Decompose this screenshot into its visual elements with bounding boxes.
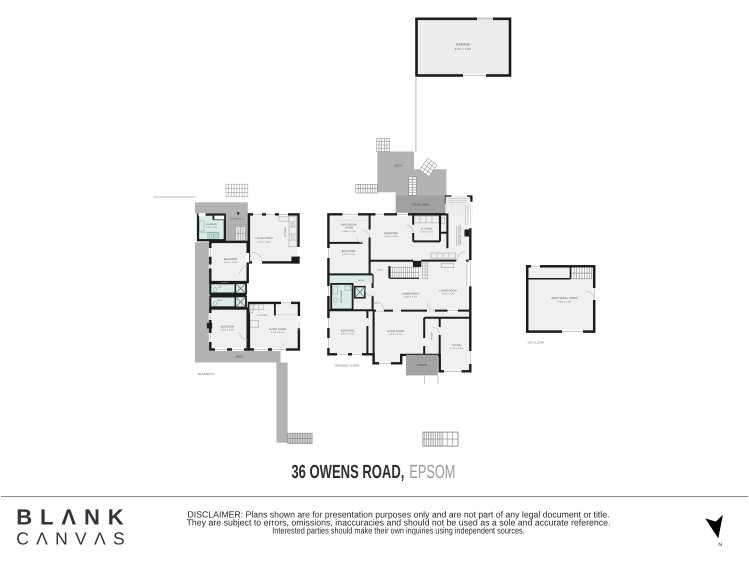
svg-text:BATH: BATH bbox=[217, 299, 223, 302]
svg-text:COVERED DECK: COVERED DECK bbox=[230, 218, 244, 221]
svg-text:FOYER: FOYER bbox=[431, 332, 434, 340]
svg-text:3.4m x 4.6m: 3.4m x 4.6m bbox=[257, 240, 270, 243]
svg-text:WC: WC bbox=[218, 286, 222, 289]
svg-text:BATHROOM: BATHROOM bbox=[340, 290, 343, 303]
svg-text:HALL: HALL bbox=[372, 302, 378, 305]
svg-text:3.4m x 3.7m: 3.4m x 3.7m bbox=[224, 261, 237, 264]
svg-text:PORCH: PORCH bbox=[417, 363, 427, 367]
svg-text:BASEMENT: BASEMENT bbox=[198, 372, 215, 376]
svg-text:6.0m x 3.8m: 6.0m x 3.8m bbox=[455, 47, 472, 51]
svg-text:2.7m x 2.9m: 2.7m x 2.9m bbox=[450, 347, 463, 350]
svg-text:36 OWENS ROAD,: 36 OWENS ROAD, bbox=[291, 462, 404, 483]
svg-text:DECK: DECK bbox=[394, 164, 402, 168]
svg-text:EPSOM: EPSOM bbox=[409, 462, 455, 483]
svg-text:COURTYARD: COURTYARD bbox=[412, 203, 429, 207]
svg-text:2.5m x 2.2m: 2.5m x 2.2m bbox=[420, 231, 433, 234]
svg-text:3.0m x 2.7m: 3.0m x 2.7m bbox=[342, 253, 355, 256]
svg-text:DECK: DECK bbox=[236, 354, 244, 358]
svg-text:LAUNDRY: LAUNDRY bbox=[206, 223, 218, 226]
svg-text:N: N bbox=[718, 542, 722, 548]
svg-text:KITCHEN: KITCHEN bbox=[284, 227, 287, 237]
svg-text:1.9m x 2.3m: 1.9m x 2.3m bbox=[205, 226, 217, 229]
svg-text:4.2m x 4.0m: 4.2m x 4.0m bbox=[558, 301, 572, 304]
svg-text:2.9m x 3.2m: 2.9m x 3.2m bbox=[404, 296, 417, 299]
svg-text:3.4m x 3.8m: 3.4m x 3.8m bbox=[221, 329, 234, 332]
svg-text:2.6m x 2.4m: 2.6m x 2.4m bbox=[342, 230, 355, 233]
svg-text:3.4m x 4.3m: 3.4m x 4.3m bbox=[271, 331, 284, 334]
svg-text:ADDITIONAL ROOM: ADDITIONAL ROOM bbox=[551, 296, 578, 300]
svg-text:1ST FLOOR: 1ST FLOOR bbox=[527, 341, 544, 345]
svg-text:3.9m x 4.1m: 3.9m x 4.1m bbox=[389, 333, 402, 336]
svg-text:KITCHEN: KITCHEN bbox=[257, 314, 267, 317]
svg-text:BATH: BATH bbox=[358, 279, 364, 282]
svg-text:ENTRY HALLWAY: ENTRY HALLWAY bbox=[459, 225, 462, 245]
svg-text:3.5m x 4.0m: 3.5m x 4.0m bbox=[384, 235, 397, 238]
svg-text:GROUND FLOOR: GROUND FLOOR bbox=[335, 364, 360, 368]
svg-text:Interested parties should make: Interested parties should make their own… bbox=[272, 525, 525, 535]
svg-text:3.0m x 3.2m: 3.0m x 3.2m bbox=[341, 333, 354, 336]
svg-text:HALL: HALL bbox=[378, 269, 384, 272]
svg-text:GARAGE: GARAGE bbox=[456, 43, 471, 47]
svg-text:3.9m x 4.3m: 3.9m x 4.3m bbox=[441, 293, 454, 296]
